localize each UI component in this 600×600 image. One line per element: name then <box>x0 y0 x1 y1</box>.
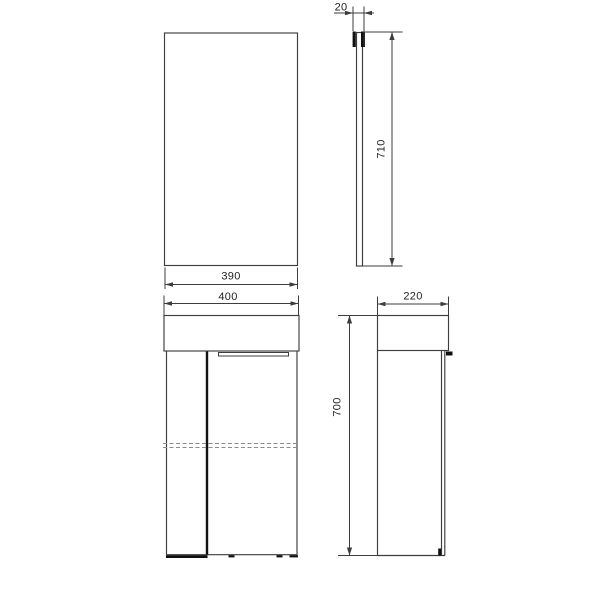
plinth-mark <box>166 555 208 558</box>
technical-drawing-canvas: 390 400 20 <box>0 0 600 600</box>
cabinet-front-view <box>163 316 300 559</box>
countertop-front-outline <box>164 316 299 352</box>
dimension-label-mirror-height: 710 <box>376 139 388 158</box>
foot-mark <box>277 555 283 557</box>
dimension-mirror-width: 390 <box>165 268 298 290</box>
dimension-label-cabinet-width: 400 <box>218 291 237 303</box>
cabinet-side-view <box>378 316 453 556</box>
foot-mark <box>438 549 441 556</box>
arrowhead-left <box>164 301 172 306</box>
arrowhead-right <box>291 301 299 306</box>
wall-bracket-mark <box>353 32 356 48</box>
foot-mark <box>290 555 299 557</box>
mirror-side-view <box>353 32 365 267</box>
dimension-cabinet-depth: 220 <box>378 291 449 351</box>
dimension-label-cabinet-depth: 220 <box>403 291 422 303</box>
door-handle-front <box>219 353 289 357</box>
dimension-cabinet-width: 400 <box>164 291 299 316</box>
arrowhead-right <box>290 282 298 287</box>
arrowhead-top <box>347 316 352 324</box>
mirror-front-outline <box>165 33 298 266</box>
arrowhead-left <box>165 282 173 287</box>
countertop-side-outline <box>378 316 449 351</box>
foot-mark <box>229 555 235 557</box>
mirror-front-view <box>165 33 298 266</box>
technical-drawing-page: 390 400 20 <box>0 0 600 600</box>
dimension-mirror-height: 710 <box>363 32 403 266</box>
dimension-label-mirror-width: 390 <box>221 271 240 283</box>
arrowhead-bottom <box>347 548 352 556</box>
arrowhead-right <box>364 11 372 16</box>
arrowhead-left <box>378 302 386 307</box>
dimension-label-cabinet-height: 700 <box>332 397 344 416</box>
arrowhead-right <box>441 302 449 307</box>
dimension-cabinet-height: 700 <box>332 316 378 556</box>
door-handle-side <box>446 352 453 356</box>
arrowhead-top <box>389 32 394 40</box>
mirror-side-outline <box>357 33 363 267</box>
arrowhead-bottom <box>389 258 394 266</box>
dimension-label-mirror-thickness: 20 <box>335 2 348 14</box>
